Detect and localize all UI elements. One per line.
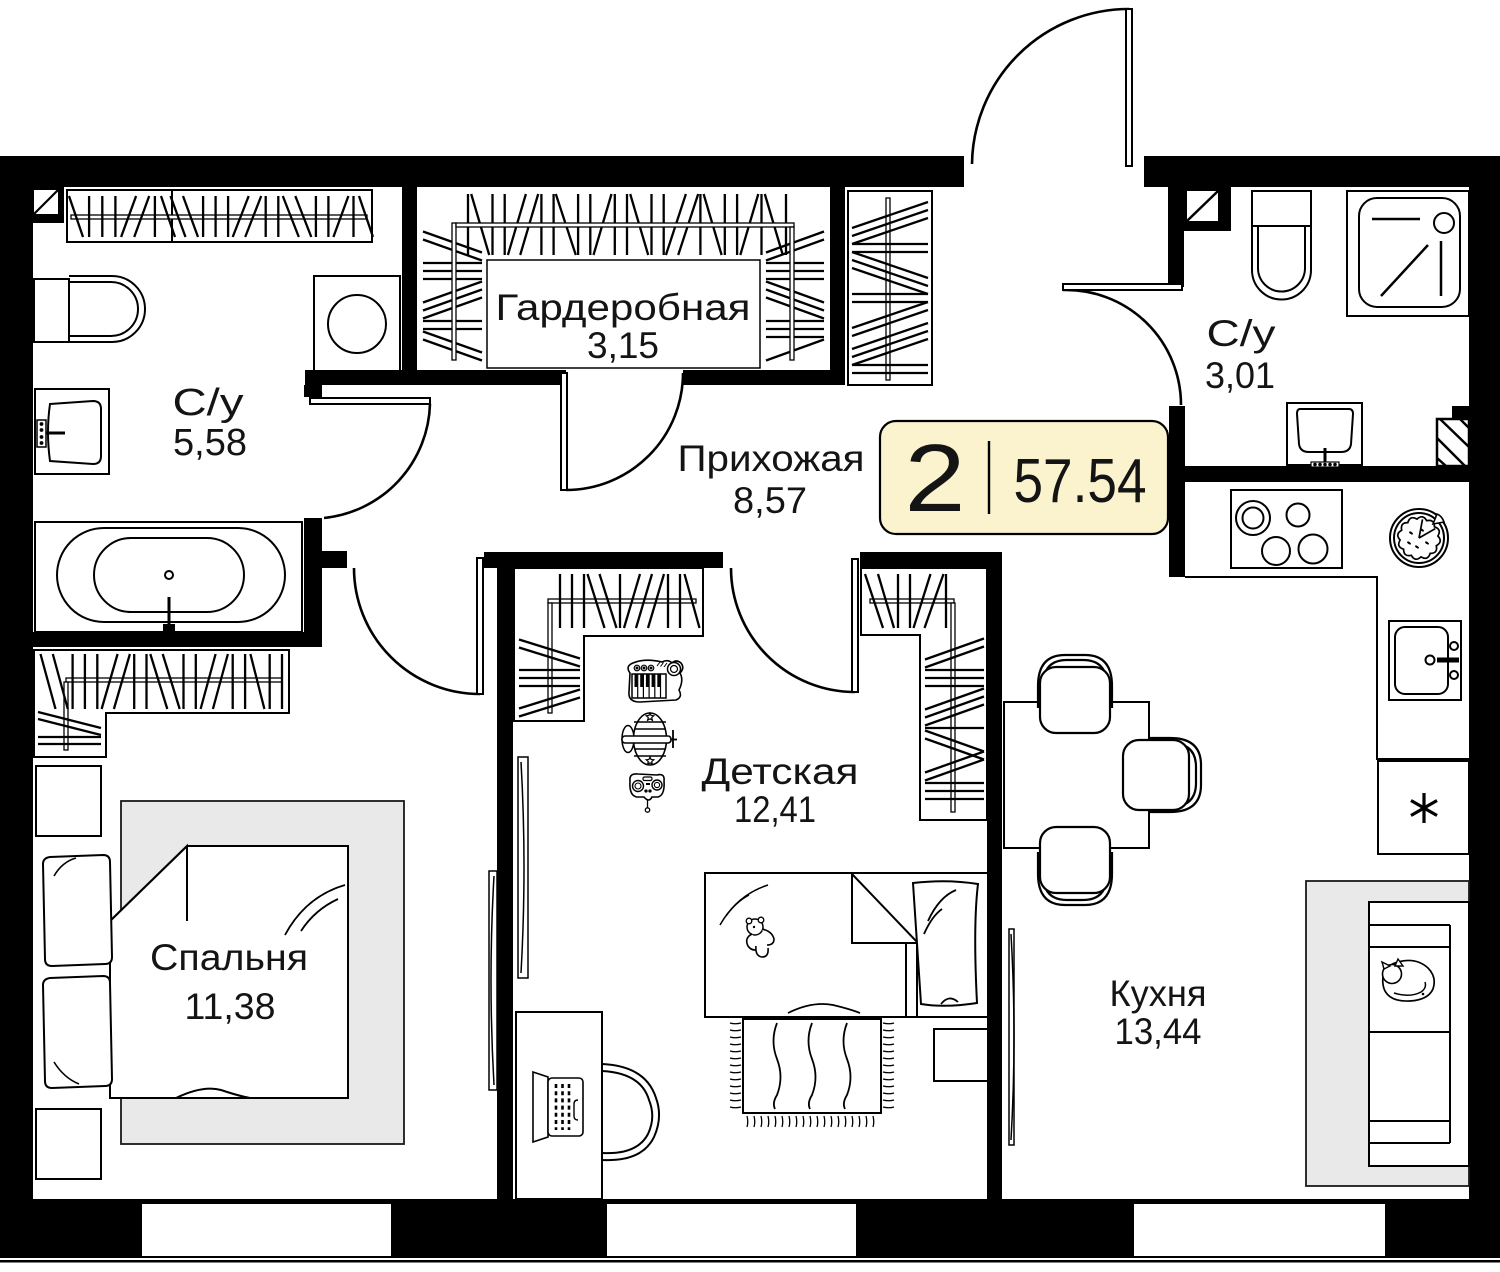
svg-text:12,41: 12,41 [734,789,816,830]
svg-text:11,38: 11,38 [185,986,276,1027]
svg-text:Гардеробная: Гардеробная [496,287,751,328]
svg-text:5,58: 5,58 [173,422,247,464]
svg-text:3,01: 3,01 [1205,355,1275,396]
svg-text:3,15: 3,15 [587,325,659,366]
svg-text:Кухня: Кухня [1110,973,1207,1014]
svg-text:57.54: 57.54 [1014,447,1147,516]
svg-text:Детская: Детская [702,751,859,792]
svg-text:Прихожая: Прихожая [678,438,865,479]
svg-text:2: 2 [905,425,966,532]
svg-text:Спальня: Спальня [150,937,308,978]
svg-text:С/у: С/у [1207,313,1277,354]
svg-text:8,57: 8,57 [733,480,807,521]
svg-text:13,44: 13,44 [1115,1011,1202,1052]
svg-text:С/у: С/у [173,382,244,424]
